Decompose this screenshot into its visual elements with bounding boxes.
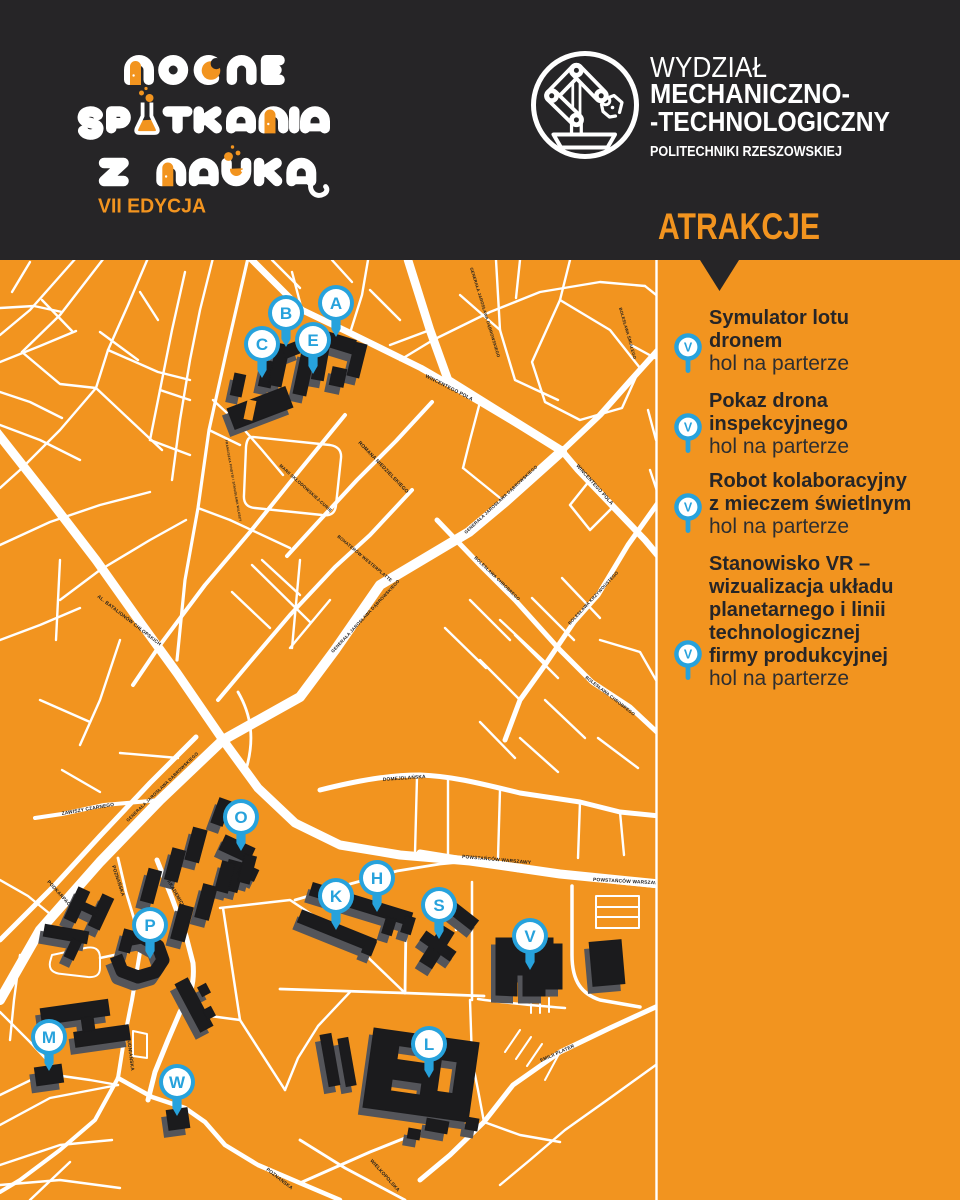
svg-text:MECHANICZNO-: MECHANICZNO- [650,78,850,109]
svg-text:V: V [524,927,536,946]
svg-text:V: V [684,341,693,355]
svg-text:-TECHNOLOGICZNY: -TECHNOLOGICZNY [650,106,890,137]
svg-text:z mieczem świetlnym: z mieczem świetlnym [709,493,911,515]
svg-text:C: C [256,335,268,354]
svg-text:W: W [169,1073,186,1092]
svg-text:wizualizacja układu: wizualizacja układu [708,576,894,598]
svg-text:M: M [42,1028,56,1047]
svg-text:S: S [433,896,444,915]
svg-text:O: O [234,808,247,827]
svg-text:hol na parterze: hol na parterze [709,352,849,375]
svg-text:planetarnego i linii: planetarnego i linii [709,599,886,621]
svg-text:hol na parterze: hol na parterze [709,435,849,458]
svg-text:Robot kolaboracyjny: Robot kolaboracyjny [709,470,908,492]
svg-text:K: K [330,887,343,906]
svg-text:dronem: dronem [709,330,782,352]
svg-text:hol na parterze: hol na parterze [709,667,849,690]
svg-text:A: A [330,294,342,313]
svg-text:H: H [371,869,383,888]
svg-text:VII EDYCJA: VII EDYCJA [98,196,206,218]
svg-text:V: V [684,648,693,662]
svg-text:E: E [307,331,318,350]
svg-text:ATRAKCJE: ATRAKCJE [658,206,820,247]
svg-text:Pokaz drona: Pokaz drona [709,390,829,412]
svg-text:firmy produkcyjnej: firmy produkcyjnej [709,645,888,667]
svg-text:technologicznej: technologicznej [709,622,860,644]
svg-text:Symulator lotu: Symulator lotu [709,307,849,329]
svg-text:L: L [424,1035,434,1054]
svg-text:Stanowisko VR –: Stanowisko VR – [709,553,870,575]
svg-text:POLITECHNIKI RZESZOWSKIEJ: POLITECHNIKI RZESZOWSKIEJ [650,144,842,160]
svg-text:inspekcyjnego: inspekcyjnego [709,413,848,435]
svg-text:V: V [684,421,693,435]
svg-text:hol na parterze: hol na parterze [709,515,849,538]
svg-text:P: P [144,916,155,935]
svg-text:V: V [684,501,693,515]
svg-text:B: B [280,304,292,323]
